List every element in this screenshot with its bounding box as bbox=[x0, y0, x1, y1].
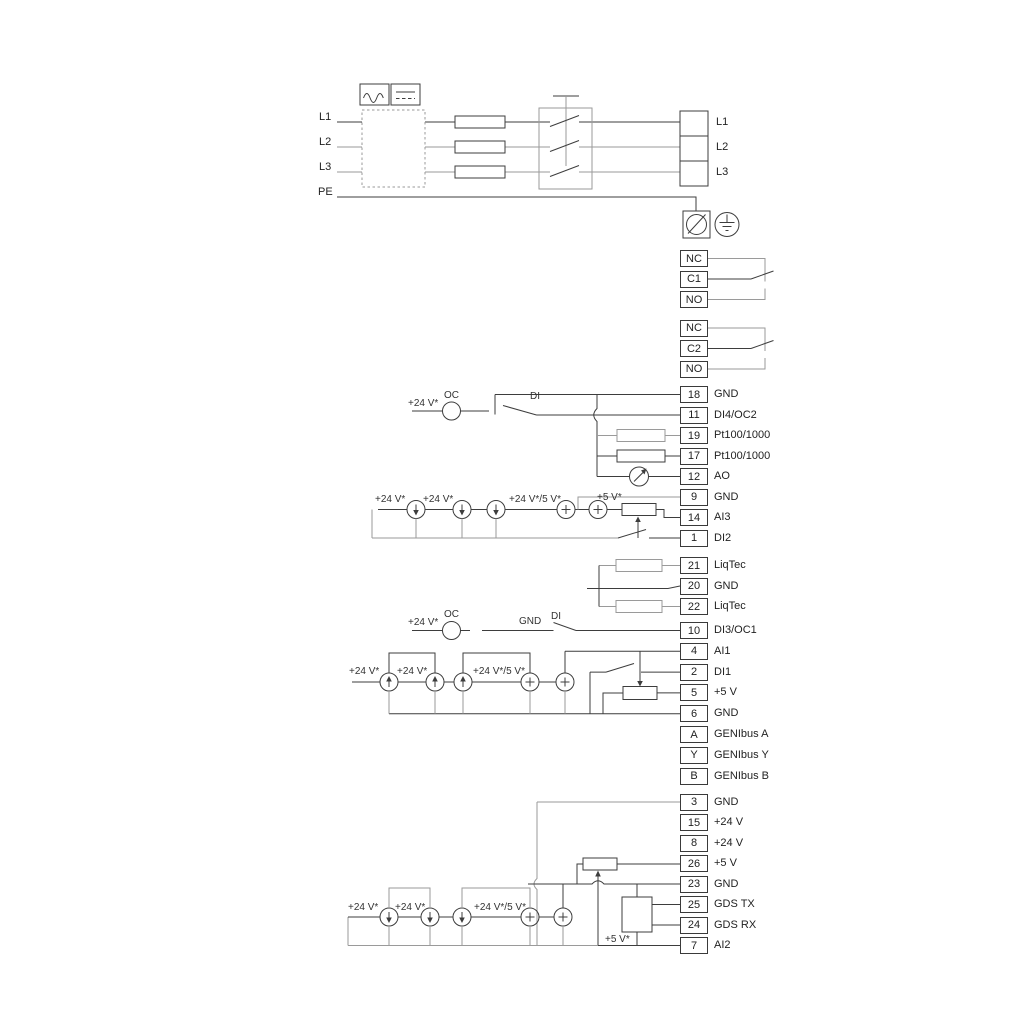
terminal-10: 10 bbox=[680, 622, 708, 639]
di2-switch bbox=[618, 530, 646, 539]
annotation-ai3-24v-5v: +24 V*/5 V* bbox=[509, 494, 561, 505]
di4-switch bbox=[503, 406, 537, 416]
terminal-12: 12 bbox=[680, 468, 708, 485]
di3-switch bbox=[554, 623, 577, 631]
terminal-label-14: AI3 bbox=[714, 509, 731, 526]
bottom-wiring bbox=[348, 802, 680, 946]
terminal-11: 11 bbox=[680, 407, 708, 424]
terminal-label-6: GND bbox=[714, 705, 738, 722]
annotation-ai1-24v-1: +24 V* bbox=[349, 666, 379, 677]
annotation-ai3-5v: +5 V* bbox=[597, 492, 622, 503]
terminal-label-Y: GENIbus Y bbox=[714, 747, 769, 764]
pe-wire bbox=[337, 197, 696, 211]
liqtec-sensor-1 bbox=[599, 560, 680, 572]
terminal-NO: NO bbox=[680, 361, 708, 378]
current-source-icon bbox=[453, 908, 471, 926]
gds-sensor-box bbox=[622, 884, 680, 946]
terminal-21: 21 bbox=[680, 557, 708, 574]
terminal-C1: C1 bbox=[680, 271, 708, 288]
current-source-icon bbox=[453, 501, 471, 519]
terminal-label-19: Pt100/1000 bbox=[714, 427, 770, 444]
gnd20-wire bbox=[587, 586, 680, 589]
annotation-ai2-5v: +5 V* bbox=[605, 934, 630, 945]
label-l3-out: L3 bbox=[716, 166, 728, 178]
annotation-di-mid: DI bbox=[551, 611, 561, 622]
io-top-wiring bbox=[412, 395, 680, 487]
current-source-icon bbox=[454, 673, 472, 691]
terminal-label-23: GND bbox=[714, 876, 738, 893]
terminal-label-4: AI1 bbox=[714, 643, 731, 660]
terminal-1: 1 bbox=[680, 530, 708, 547]
terminal-label-5: +5 V bbox=[714, 684, 737, 701]
terminal-label-3: GND bbox=[714, 794, 738, 811]
annotation-oc-mid: OC bbox=[444, 609, 459, 620]
terminal-label-17: Pt100/1000 bbox=[714, 448, 770, 465]
terminal-label-24: GDS RX bbox=[714, 917, 756, 934]
current-source-icon bbox=[426, 673, 444, 691]
terminal-label-11: DI4/OC2 bbox=[714, 407, 757, 424]
ai1-di1-wiring bbox=[352, 651, 680, 713]
terminal-4: 4 bbox=[680, 643, 708, 660]
terminal-NC: NC bbox=[680, 320, 708, 337]
terminal-17: 17 bbox=[680, 448, 708, 465]
terminal-8: 8 bbox=[680, 835, 708, 852]
terminal-label-18: GND bbox=[714, 386, 738, 403]
label-l2-out: L2 bbox=[716, 141, 728, 153]
annotation-gnd-mid: GND bbox=[519, 616, 541, 627]
relay1-contact bbox=[708, 259, 774, 300]
gnd23-wire bbox=[528, 881, 680, 884]
fuse-l1 bbox=[455, 116, 505, 128]
annotation-ai2-24v-5v: +24 V*/5 V* bbox=[474, 902, 526, 913]
terminal-23: 23 bbox=[680, 876, 708, 893]
liqtec-sensor-2 bbox=[599, 601, 680, 613]
open-collector-icon bbox=[443, 622, 461, 640]
label-l1-out: L1 bbox=[716, 116, 728, 128]
terminal-label-22: LiqTec bbox=[714, 598, 746, 615]
terminal-label-1: DI2 bbox=[714, 530, 731, 547]
terminal-label-20: GND bbox=[714, 578, 738, 595]
annotation-di: DI bbox=[530, 391, 540, 402]
ac-symbol-icon bbox=[360, 84, 389, 105]
label-l2-in: L2 bbox=[319, 136, 331, 148]
screw-terminal-icon bbox=[683, 211, 710, 238]
terminal-C2: C2 bbox=[680, 340, 708, 357]
voltage-source-icon bbox=[589, 501, 607, 519]
terminal-label-12: AO bbox=[714, 468, 730, 485]
annotation-ai3-24v-1: +24 V* bbox=[375, 494, 405, 505]
terminal-NC: NC bbox=[680, 250, 708, 267]
terminal-NO: NO bbox=[680, 291, 708, 308]
terminal-6: 6 bbox=[680, 705, 708, 722]
terminal-9: 9 bbox=[680, 489, 708, 506]
terminal-A: A bbox=[680, 726, 708, 743]
annotation-oc: OC bbox=[444, 390, 459, 401]
di1-switch bbox=[606, 664, 634, 673]
potentiometer-ai1 bbox=[603, 651, 680, 713]
open-collector-icon bbox=[443, 402, 461, 420]
terminal-label-B: GENIbus B bbox=[714, 768, 769, 785]
terminal-14: 14 bbox=[680, 509, 708, 526]
pt100-sensor-2 bbox=[597, 450, 680, 462]
label-l3-in: L3 bbox=[319, 161, 331, 173]
contactor-switch bbox=[539, 96, 592, 189]
terminal-Y: Y bbox=[680, 747, 708, 764]
annotation-ai3-24v-2: +24 V* bbox=[423, 494, 453, 505]
analog-output-meter-icon bbox=[597, 467, 680, 486]
dc-symbol-icon bbox=[391, 84, 420, 105]
annotation-ai1-24v-5v: +24 V*/5 V* bbox=[473, 666, 525, 677]
terminal-label-10: DI3/OC1 bbox=[714, 622, 757, 639]
mains-terminal-block bbox=[680, 111, 708, 186]
fuse-l3 bbox=[455, 166, 505, 178]
terminal-label-7: AI2 bbox=[714, 937, 731, 954]
terminal-label-9: GND bbox=[714, 489, 738, 506]
earth-ground-icon bbox=[715, 213, 739, 237]
di3-wiring bbox=[412, 622, 680, 640]
pt100-sensor-1 bbox=[597, 430, 680, 442]
current-source-icon bbox=[487, 501, 505, 519]
terminal-label-26: +5 V bbox=[714, 855, 737, 872]
terminal-25: 25 bbox=[680, 896, 708, 913]
wiring-diagram: L1 L2 L3 PE L1 L2 L3 +24 V* OC DI +24 V*… bbox=[0, 0, 1024, 1024]
relay2-contact bbox=[708, 328, 774, 369]
fuse-l2 bbox=[455, 141, 505, 153]
terminal-label-21: LiqTec bbox=[714, 557, 746, 574]
terminal-B: B bbox=[680, 768, 708, 785]
terminal-label-25: GDS TX bbox=[714, 896, 755, 913]
terminal-18: 18 bbox=[680, 386, 708, 403]
terminal-2: 2 bbox=[680, 664, 708, 681]
voltage-source-icon bbox=[554, 908, 572, 926]
terminal-15: 15 bbox=[680, 814, 708, 831]
voltage-source-icon bbox=[556, 673, 574, 691]
annotation-ai2-24v-1: +24 V* bbox=[348, 902, 378, 913]
terminal-label-A: GENIbus A bbox=[714, 726, 768, 743]
annotation-ai1-24v-2: +24 V* bbox=[397, 666, 427, 677]
emc-filter-box bbox=[362, 110, 425, 187]
terminal-19: 19 bbox=[680, 427, 708, 444]
annotation-24v-supply: +24 V* bbox=[408, 398, 438, 409]
terminal-3: 3 bbox=[680, 794, 708, 811]
liqtec-wiring bbox=[587, 560, 680, 613]
terminal-label-15: +24 V bbox=[714, 814, 743, 831]
terminal-20: 20 bbox=[680, 578, 708, 595]
power-section bbox=[337, 84, 739, 238]
terminal-26: 26 bbox=[680, 855, 708, 872]
terminal-7: 7 bbox=[680, 937, 708, 954]
terminal-24: 24 bbox=[680, 917, 708, 934]
diagram-wires bbox=[0, 0, 1024, 1024]
annotation-ai2-24v-2: +24 V* bbox=[395, 902, 425, 913]
terminal-22: 22 bbox=[680, 598, 708, 615]
current-source-icon bbox=[380, 673, 398, 691]
potentiometer-ai3 bbox=[622, 504, 680, 539]
terminal-5: 5 bbox=[680, 684, 708, 701]
annotation-24v-supply-mid: +24 V* bbox=[408, 617, 438, 628]
terminal-label-2: DI1 bbox=[714, 664, 731, 681]
terminal-label-8: +24 V bbox=[714, 835, 743, 852]
label-pe-in: PE bbox=[318, 186, 333, 198]
label-l1-in: L1 bbox=[319, 111, 331, 123]
